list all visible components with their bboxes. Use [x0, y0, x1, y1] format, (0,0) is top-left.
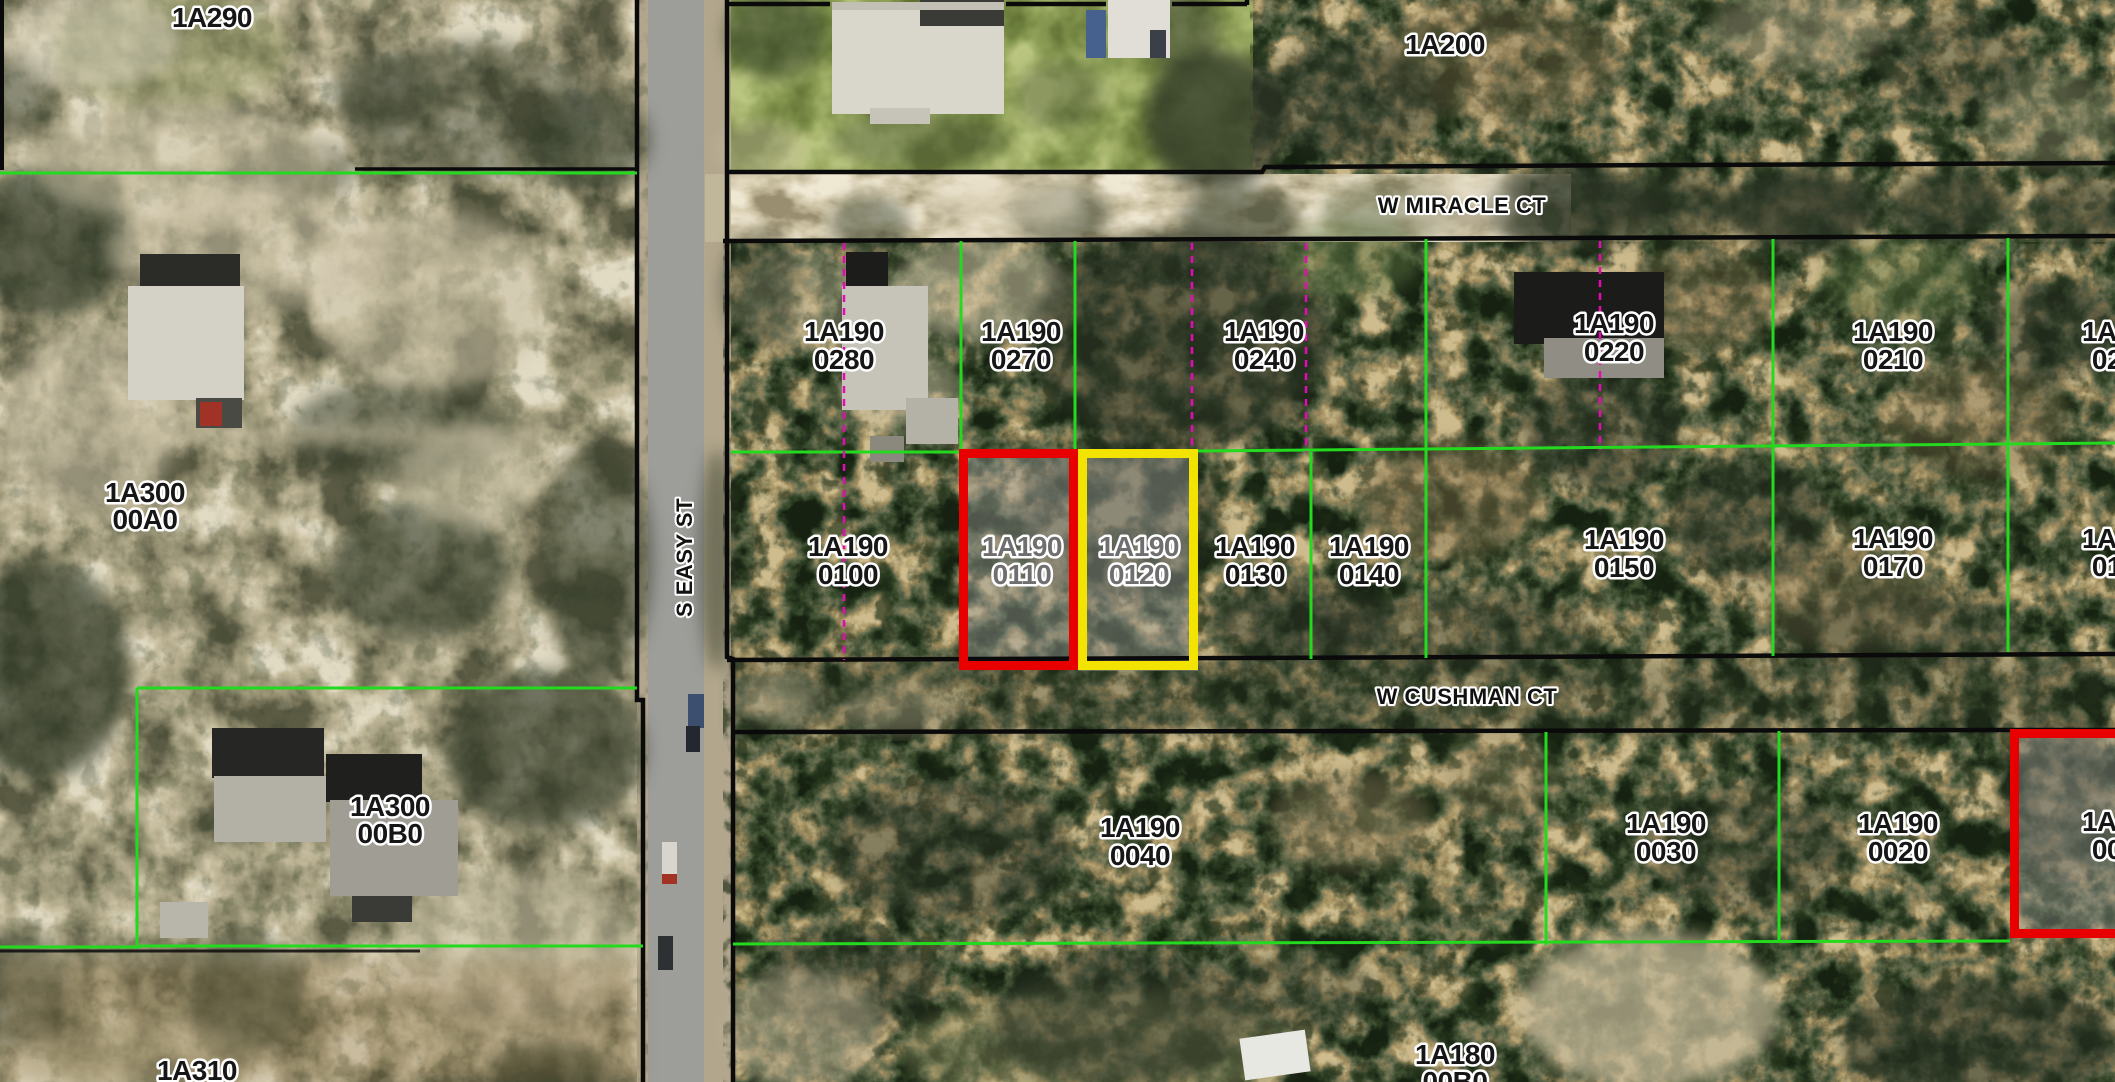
- svg-text:S EASY ST: S EASY ST: [672, 498, 697, 617]
- svg-text:0150: 0150: [1594, 552, 1654, 583]
- svg-text:1A190: 1A190: [1574, 308, 1654, 339]
- svg-text:1A200: 1A200: [1405, 29, 1485, 60]
- svg-text:1A190: 1A190: [1329, 531, 1409, 562]
- svg-text:0040: 0040: [1110, 840, 1170, 871]
- svg-text:0100: 0100: [818, 559, 878, 590]
- svg-text:1A190: 1A190: [1584, 524, 1664, 555]
- svg-text:0230: 0230: [2092, 344, 2115, 375]
- svg-text:1A190: 1A190: [808, 531, 888, 562]
- svg-text:0220: 0220: [1584, 336, 1644, 367]
- svg-text:0280: 0280: [814, 344, 874, 375]
- svg-text:1A190: 1A190: [2082, 523, 2115, 554]
- svg-text:0160: 0160: [2092, 551, 2115, 582]
- svg-text:0140: 0140: [1339, 559, 1399, 590]
- svg-text:0170: 0170: [1863, 551, 1923, 582]
- svg-text:1A190: 1A190: [1853, 316, 1933, 347]
- svg-text:1A190: 1A190: [1224, 316, 1304, 347]
- svg-text:1A190: 1A190: [981, 316, 1061, 347]
- svg-text:1A190: 1A190: [1099, 531, 1179, 562]
- svg-text:0110: 0110: [993, 559, 1052, 590]
- svg-text:W MIRACLE CT: W MIRACLE CT: [1378, 193, 1547, 218]
- svg-text:1A190: 1A190: [804, 316, 884, 347]
- svg-text:1A190: 1A190: [982, 531, 1062, 562]
- svg-text:1A190: 1A190: [1626, 808, 1706, 839]
- svg-text:1A190: 1A190: [1215, 531, 1295, 562]
- svg-text:1A190: 1A190: [2082, 316, 2115, 347]
- svg-text:0130: 0130: [1225, 559, 1285, 590]
- svg-text:1A290: 1A290: [172, 2, 252, 33]
- svg-text:W CUSHMAN CT: W CUSHMAN CT: [1377, 684, 1558, 709]
- svg-text:1A190: 1A190: [2082, 806, 2115, 837]
- svg-text:00B0: 00B0: [358, 818, 423, 849]
- svg-text:00B0: 00B0: [1423, 1066, 1488, 1082]
- svg-text:1A190: 1A190: [1100, 812, 1180, 843]
- svg-text:0120: 0120: [1109, 559, 1169, 590]
- svg-text:00A0: 00A0: [113, 504, 178, 535]
- svg-text:0020: 0020: [1868, 836, 1928, 867]
- svg-text:1A190: 1A190: [1858, 808, 1938, 839]
- svg-text:0010: 0010: [2092, 834, 2115, 865]
- svg-text:0270: 0270: [991, 344, 1051, 375]
- svg-text:0210: 0210: [1863, 344, 1923, 375]
- svg-text:0240: 0240: [1234, 344, 1294, 375]
- svg-text:1A190: 1A190: [1853, 523, 1933, 554]
- svg-text:1A310: 1A310: [157, 1055, 237, 1082]
- svg-text:0030: 0030: [1636, 836, 1696, 867]
